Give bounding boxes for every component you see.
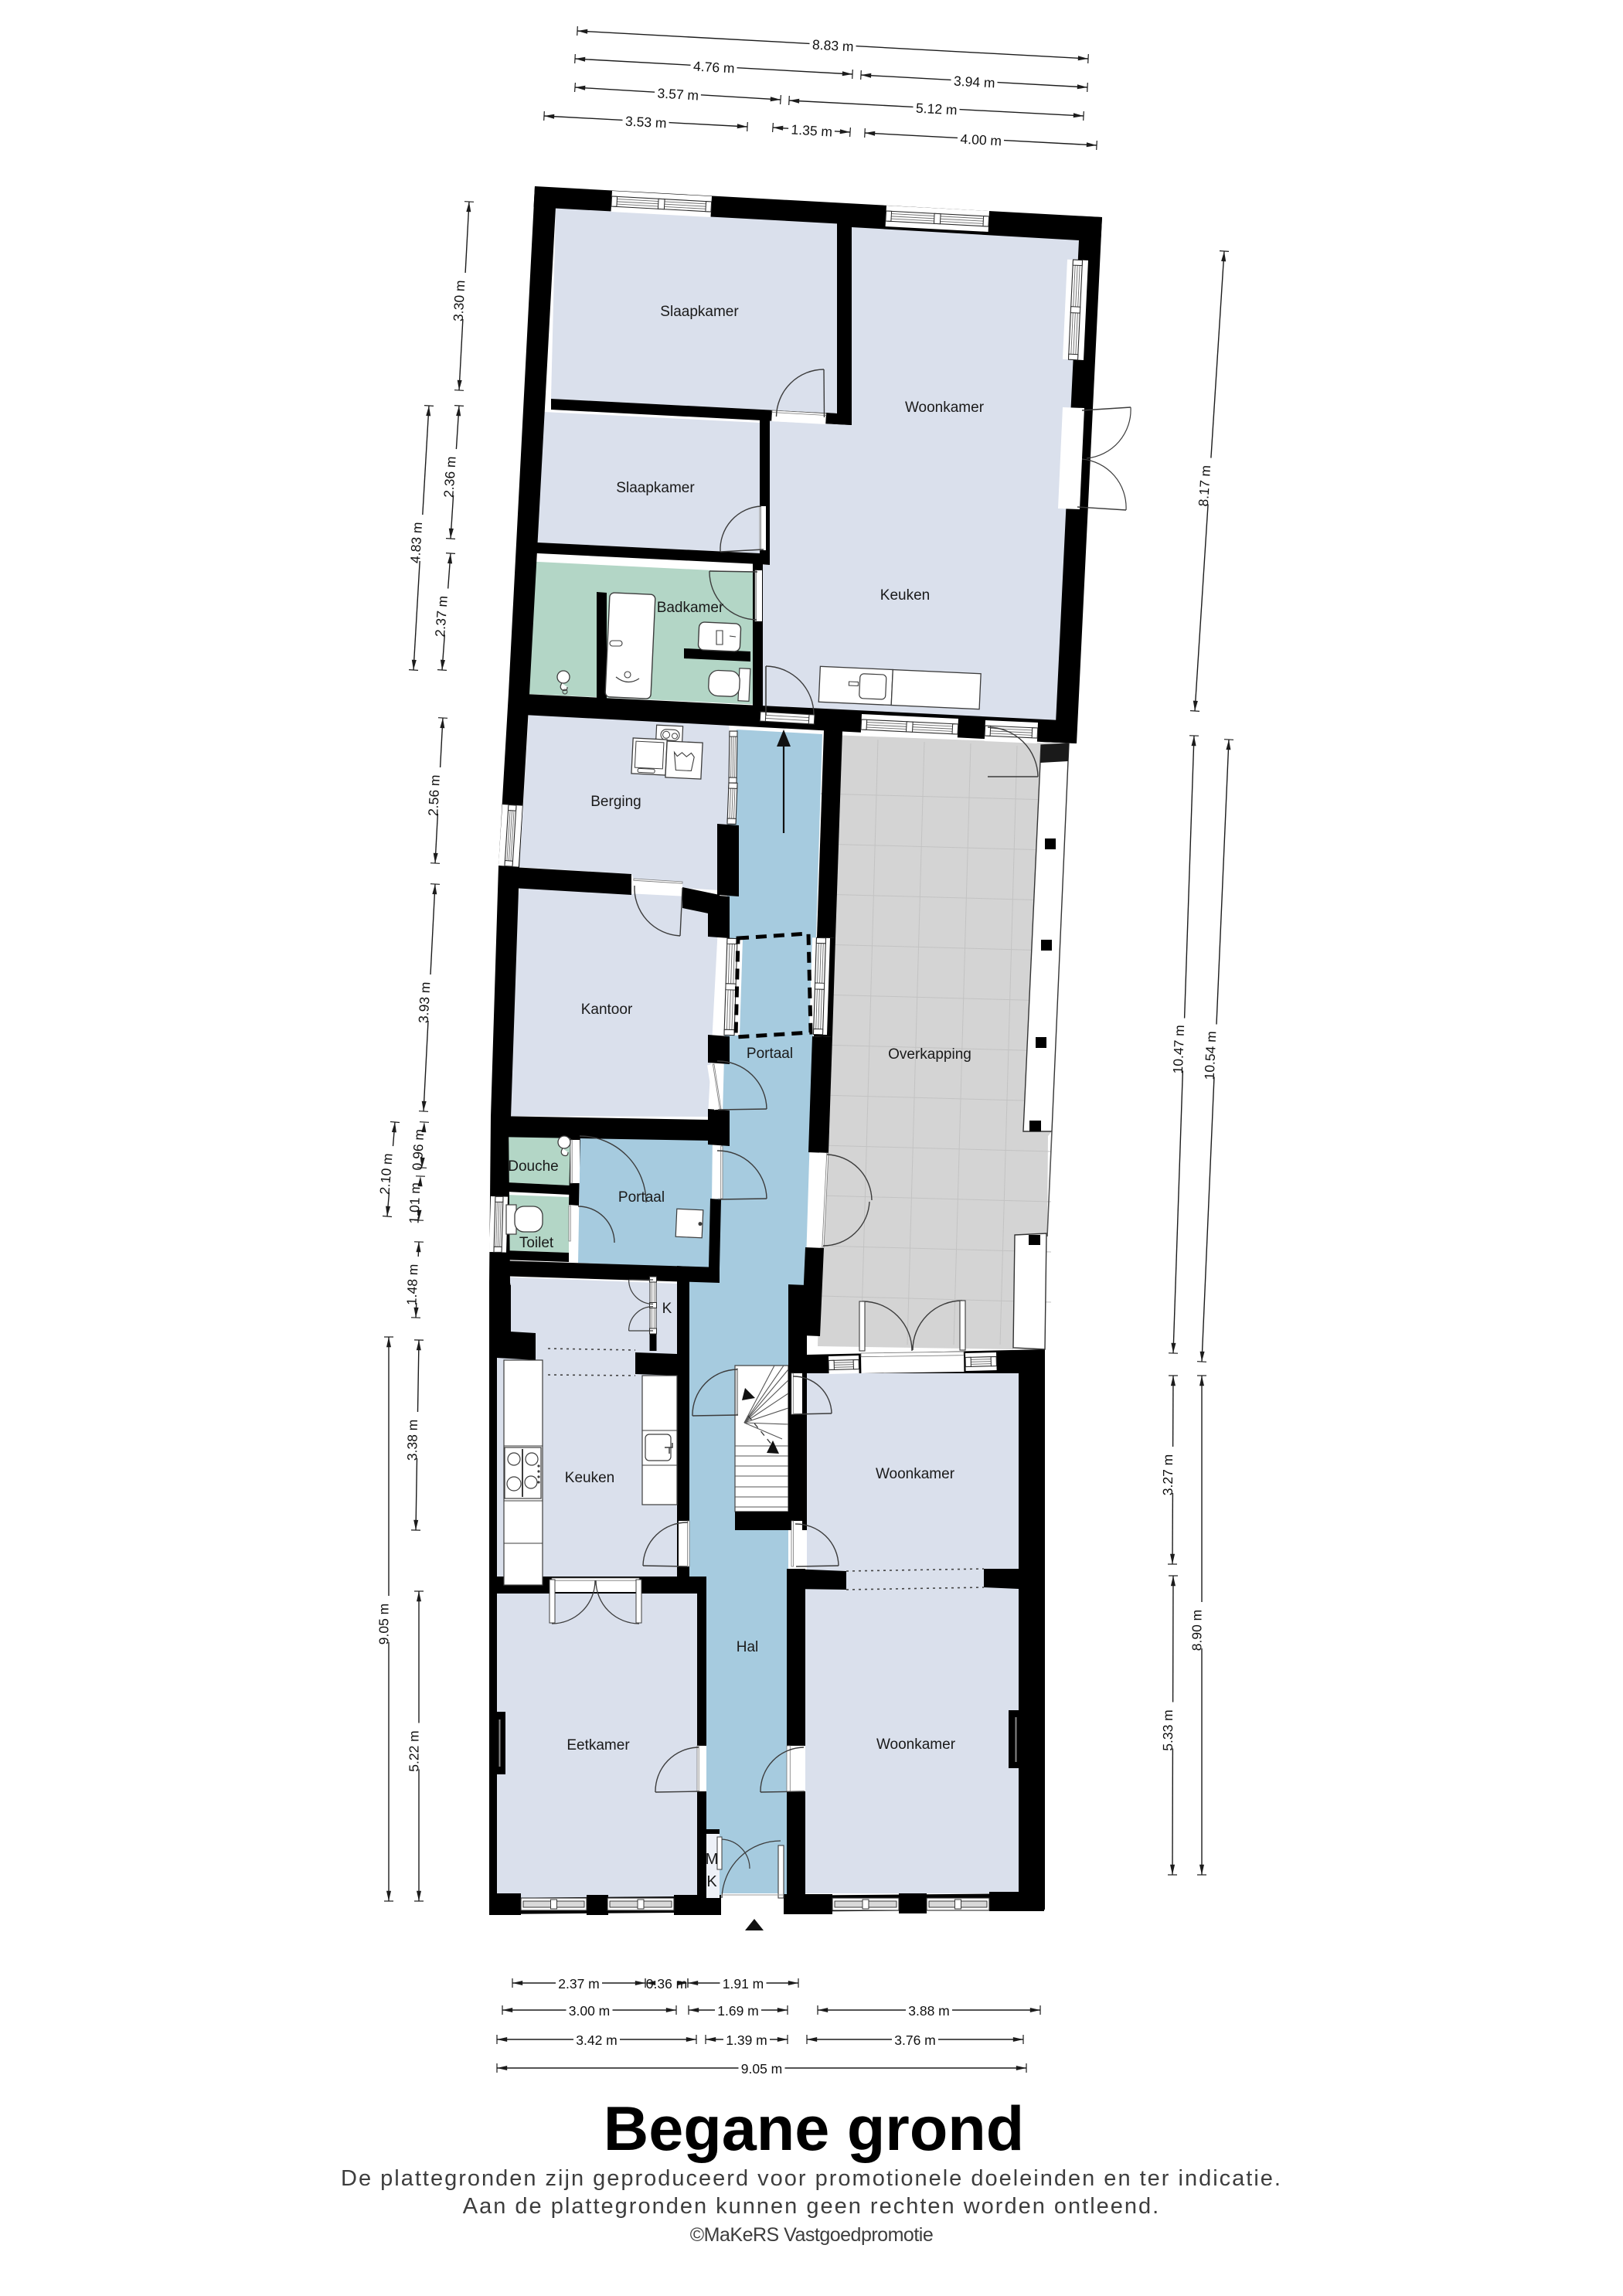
svg-text:Douche: Douche [508, 1158, 559, 1175]
svg-text:Berging: Berging [590, 794, 641, 810]
svg-text:Slaapkamer: Slaapkamer [660, 304, 739, 320]
svg-text:2.56 m: 2.56 m [425, 774, 443, 816]
svg-text:5.33 m: 5.33 m [1160, 1709, 1176, 1751]
svg-text:Begane grond: Begane grond [604, 2094, 1025, 2164]
svg-text:Portaal: Portaal [747, 1046, 793, 1062]
svg-text:0.36 m: 0.36 m [646, 1976, 688, 1992]
svg-text:Woonkamer: Woonkamer [905, 400, 985, 416]
svg-text:9.05 m: 9.05 m [741, 2061, 783, 2077]
svg-text:8.90 m: 8.90 m [1189, 1610, 1205, 1651]
svg-text:4.76 m: 4.76 m [693, 59, 736, 77]
svg-text:De plattegronden zijn geproduc: De plattegronden zijn geproduceerd voor … [341, 2166, 1282, 2191]
svg-text:1.69 m: 1.69 m [717, 2003, 759, 2019]
svg-text:4.83 m: 4.83 m [407, 522, 425, 564]
svg-text:3.93 m: 3.93 m [416, 981, 434, 1023]
svg-text:3.53 m: 3.53 m [625, 114, 667, 131]
svg-text:3.57 m: 3.57 m [657, 85, 699, 103]
svg-text:5.12 m: 5.12 m [916, 100, 958, 118]
svg-text:3.42 m: 3.42 m [576, 2032, 618, 2048]
svg-text:Hal: Hal [737, 1639, 759, 1655]
svg-text:5.22 m: 5.22 m [407, 1730, 422, 1772]
svg-text:1.91 m: 1.91 m [723, 1976, 764, 1992]
svg-text:3.76 m: 3.76 m [894, 2032, 936, 2048]
svg-text:Overkapping: Overkapping [888, 1046, 971, 1063]
svg-text:10.54 m: 10.54 m [1202, 1031, 1220, 1080]
svg-text:©MaKeRS Vastgoedpromotie: ©MaKeRS Vastgoedpromotie [690, 2224, 933, 2246]
svg-text:3.27 m: 3.27 m [1160, 1454, 1176, 1496]
svg-text:M: M [706, 1851, 719, 1868]
svg-text:3.94 m: 3.94 m [954, 73, 996, 91]
svg-text:3.30 m: 3.30 m [451, 280, 468, 321]
svg-text:2.37 m: 2.37 m [432, 595, 451, 638]
svg-text:1.35 m: 1.35 m [791, 121, 833, 139]
svg-text:2.36 m: 2.36 m [441, 456, 458, 498]
svg-text:Slaapkamer: Slaapkamer [616, 480, 695, 496]
svg-text:K: K [706, 1873, 717, 1890]
svg-text:Kantoor: Kantoor [581, 1002, 633, 1018]
svg-text:Keuken: Keuken [565, 1470, 614, 1486]
svg-text:Aan de plattegronden kunnen ge: Aan de plattegronden kunnen geen rechten… [463, 2194, 1160, 2219]
svg-text:3.38 m: 3.38 m [404, 1419, 420, 1461]
svg-text:10.47 m: 10.47 m [1170, 1025, 1187, 1074]
svg-text:1.39 m: 1.39 m [726, 2032, 767, 2048]
svg-text:0.96 m: 0.96 m [410, 1128, 427, 1170]
svg-text:Badkamer: Badkamer [657, 600, 724, 616]
svg-text:Keuken: Keuken [880, 587, 930, 604]
svg-text:8.17 m: 8.17 m [1196, 464, 1213, 507]
svg-text:Toilet: Toilet [519, 1235, 554, 1251]
svg-text:3.88 m: 3.88 m [908, 2003, 950, 2019]
svg-text:K: K [662, 1301, 672, 1317]
svg-text:9.05 m: 9.05 m [376, 1604, 392, 1645]
svg-text:4.00 m: 4.00 m [960, 131, 1002, 149]
svg-text:Eetkamer: Eetkamer [567, 1737, 630, 1753]
svg-text:Woonkamer: Woonkamer [876, 1466, 955, 1482]
svg-text:1.01 m: 1.01 m [407, 1182, 424, 1224]
svg-text:Woonkamer: Woonkamer [876, 1736, 956, 1753]
svg-text:2.37 m: 2.37 m [558, 1976, 600, 1992]
svg-text:1.48 m: 1.48 m [403, 1264, 420, 1305]
svg-text:3.00 m: 3.00 m [569, 2003, 611, 2019]
svg-text:Portaal: Portaal [618, 1189, 665, 1206]
svg-text:8.83 m: 8.83 m [812, 37, 855, 55]
